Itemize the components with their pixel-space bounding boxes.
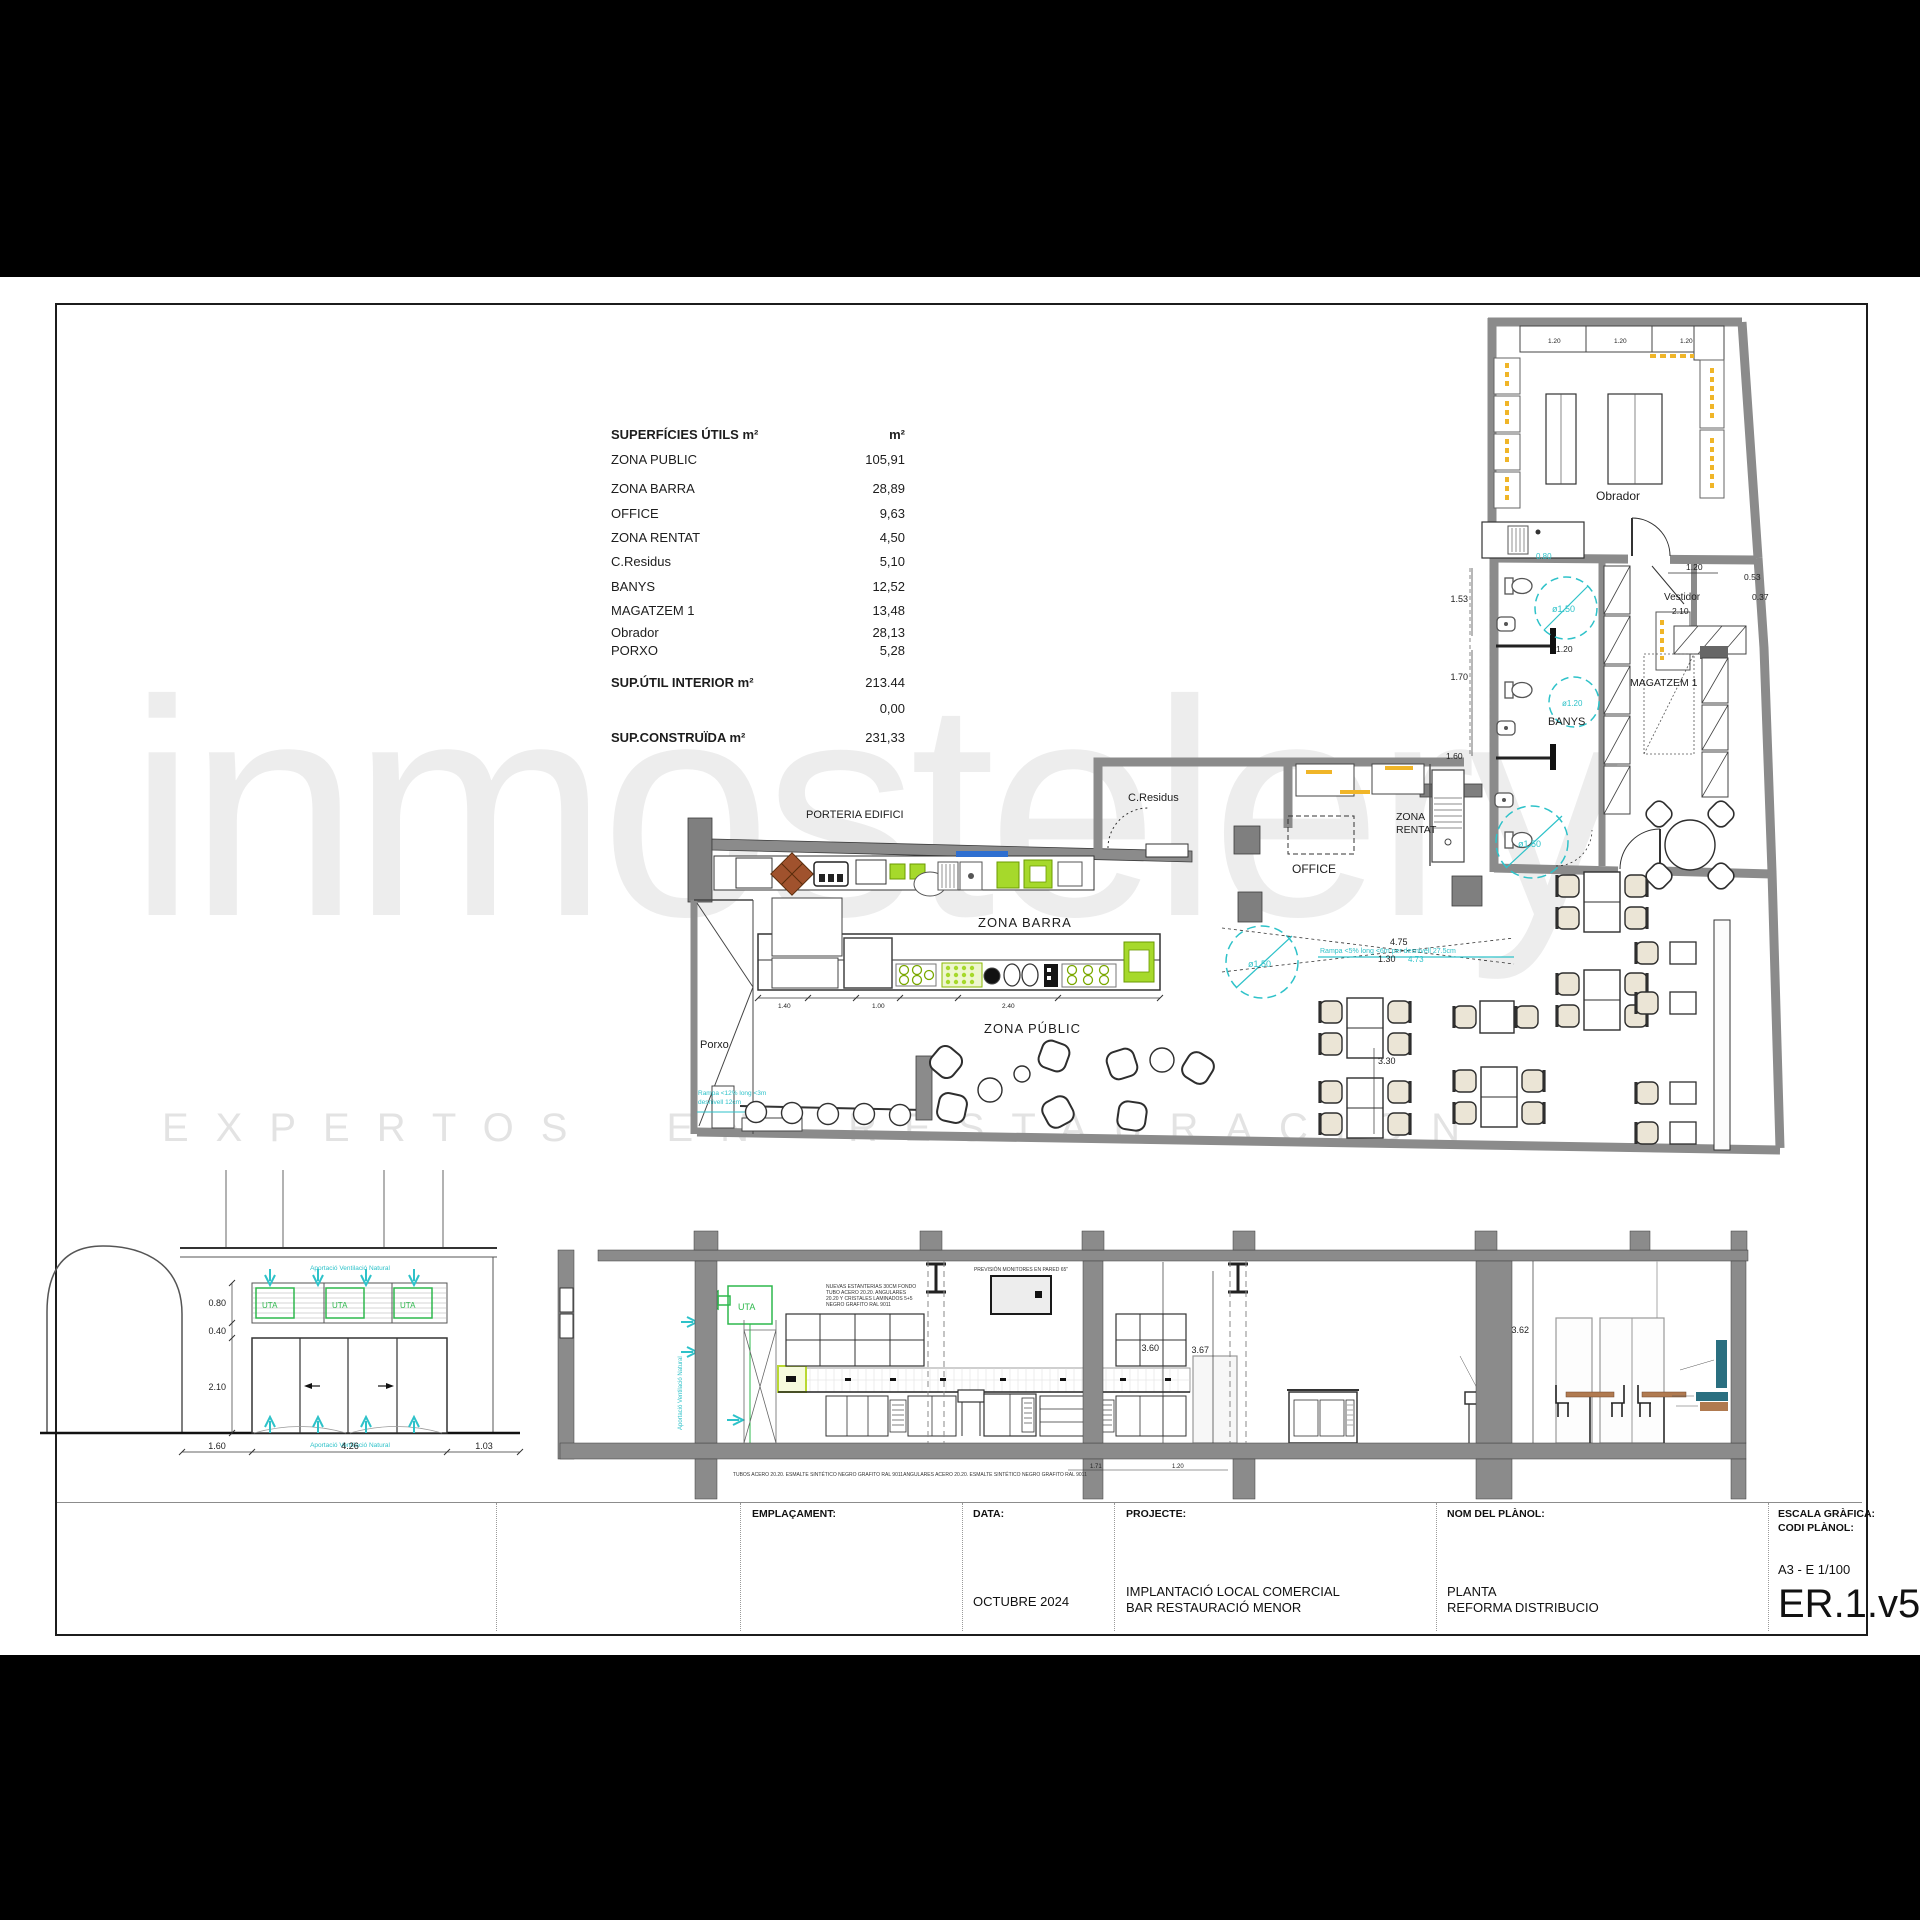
- elev-dim-426: 4.26: [341, 1441, 359, 1451]
- elev-dim-080: 0.80: [208, 1298, 226, 1308]
- ramp-note-porxo-1: Rampa <12% long <3m: [698, 1090, 766, 1097]
- title-block-col-divider: [1436, 1503, 1437, 1631]
- table-row: PORXO5,28: [611, 643, 905, 658]
- dim-bar-3: 2.40: [1002, 1003, 1015, 1010]
- service-rooms: [1288, 764, 1464, 862]
- elev-dim-040: 0.40: [208, 1326, 226, 1336]
- access-circle-2: ø1.50: [1518, 839, 1541, 849]
- dim-160: 1.60: [1446, 751, 1463, 761]
- table-row: BANYS12,52: [611, 579, 905, 594]
- public-zone-furniture: [740, 1038, 1217, 1132]
- elev-dim-210: 2.10: [208, 1382, 226, 1392]
- section-dim-171: 1.71: [1090, 1464, 1102, 1470]
- emplacament-label: EMPLAÇAMENT:: [752, 1508, 836, 1520]
- tv-note: PREVISIÓN MONITORES EN PARED 65": [974, 1266, 1068, 1273]
- dim-bar-2: 1.00: [872, 1003, 885, 1010]
- label-magatzem: MAGATZEM 1: [1630, 677, 1698, 689]
- section-dim-360: 3.60: [1141, 1343, 1159, 1353]
- section-dim-362: 3.62: [1511, 1325, 1529, 1335]
- screenshot-canvas: inmostelery EXPERTOS EN RESTAURACION: [0, 0, 1920, 1920]
- projecte-value: IMPLANTACIÓ LOCAL COMERCIAL BAR RESTAURA…: [1126, 1584, 1340, 1616]
- dim-130: 1.30: [1378, 954, 1396, 964]
- access-circle-3: ø1.50: [1552, 604, 1575, 614]
- title-block-col-divider: [962, 1503, 963, 1631]
- dim-475: 4.75: [1390, 937, 1408, 947]
- bar-back-counter: [714, 851, 1094, 896]
- surface-table-title: SUPERFÍCIES ÚTILS m²: [611, 427, 758, 442]
- data-label: DATA:: [973, 1508, 1004, 1520]
- uta-section: UTA: [738, 1302, 755, 1312]
- surface-table-unit: m²: [889, 427, 905, 442]
- ramp-note-porxo-2: desnivell 12cm: [698, 1099, 741, 1106]
- elev-dim-103: 1.03: [475, 1441, 493, 1451]
- label-porxo: Porxo: [700, 1039, 729, 1051]
- title-block-col-divider: [740, 1503, 741, 1631]
- section-vent-note: Aportació Ventilació Natural: [678, 1356, 684, 1430]
- data-value: OCTUBRE 2024: [973, 1594, 1069, 1610]
- label-cresidus: C.Residus: [1128, 792, 1179, 804]
- table-total-interior: SUP.ÚTIL INTERIOR m²213.44: [611, 675, 905, 690]
- obrador-dim-2: 1.20: [1614, 338, 1627, 345]
- table-row: MAGATZEM 113,48: [611, 603, 905, 618]
- uta-box-2: UTA: [332, 1301, 348, 1310]
- codi-label: CODI PLÀNOL:: [1778, 1522, 1854, 1534]
- dim-120-vestidor: 1.20: [1686, 562, 1703, 572]
- dining-tables: [1320, 798, 1737, 1150]
- elevation-drawing: UTA UTA UTA Aportació Ventilació Natural…: [40, 1170, 523, 1455]
- codi-value: ER.1.v5: [1778, 1584, 1920, 1624]
- escala-value: A3 - E 1/100: [1778, 1562, 1850, 1578]
- table-row: OFFICE9,63: [611, 506, 905, 521]
- title-block-divider: [57, 1502, 1862, 1503]
- elev-dim-160: 1.60: [208, 1441, 226, 1451]
- bar-left-cabinets: [772, 898, 892, 988]
- dim-120-banys: 1.20: [1556, 644, 1573, 654]
- dim-170: 1.70: [1450, 672, 1468, 682]
- section-drawing: UTA Aportació Ventilació Natural PREVISI…: [558, 0, 1748, 1499]
- table-total-built: SUP.CONSTRUÏDA m²231,33: [611, 730, 905, 745]
- section-dim-367: 3.67: [1191, 1345, 1209, 1355]
- drawings: 1.20 1.20 1.20 0.80: [0, 0, 1920, 1920]
- dim-037: 0.37: [1752, 592, 1769, 602]
- label-vestidor: Vestidor: [1664, 592, 1701, 603]
- access-circle-1: ø1.50: [1248, 959, 1271, 969]
- nom-planol-value: PLANTA REFORMA DISTRIBUCIO: [1447, 1584, 1599, 1616]
- obrador-dim-1: 1.20: [1548, 338, 1561, 345]
- label-porteria: PORTERIA EDIFICI: [806, 809, 904, 821]
- title-block-col-divider: [496, 1503, 497, 1631]
- dim-210-vestidor: 2.10: [1672, 606, 1689, 616]
- projecte-label: PROJECTE:: [1126, 1508, 1186, 1520]
- dim-473: 4.73: [1408, 955, 1424, 964]
- table-row: ZONA PUBLIC105,91: [611, 452, 905, 467]
- nom-planol-label: NOM DEL PLÀNOL:: [1447, 1508, 1545, 1520]
- title-block-col-divider: [1114, 1503, 1115, 1631]
- dim-330: 3.30: [1378, 1056, 1396, 1066]
- table-row: ZONA RENTAT4,50: [611, 530, 905, 545]
- obrador-dim-cyan: 0.80: [1536, 552, 1552, 561]
- label-rentat-1: ZONA: [1396, 811, 1425, 823]
- section-bottom-note-1: TUBOS ACERO 20.20. ESMALTE SINTÉTICO NEG…: [733, 1471, 903, 1478]
- dim-bar-1: 1.40: [778, 1003, 791, 1010]
- svg-text:NEGRO GRAFITO RAL 9011: NEGRO GRAFITO RAL 9011: [826, 1302, 891, 1308]
- access-circle-4: ø1.20: [1562, 699, 1583, 708]
- obrador-dim-3: 1.20: [1680, 338, 1693, 345]
- table-row: Obrador28,13: [611, 625, 905, 640]
- table-row: C.Residus5,10: [611, 554, 905, 569]
- label-zona-barra: ZONA BARRA: [978, 915, 1072, 930]
- label-rentat-2: RENTAT: [1396, 824, 1437, 836]
- shelf-note: NUEVAS ESTANTERIAS 30CM FONDO TUBO ACERO…: [826, 1284, 916, 1308]
- vent-note-top: Aportació Ventilació Natural: [310, 1265, 390, 1272]
- dim-053: 0.53: [1744, 572, 1761, 582]
- label-office: OFFICE: [1292, 862, 1336, 876]
- dim-153: 1.53: [1450, 594, 1468, 604]
- label-obrador: Obrador: [1596, 489, 1640, 503]
- table-total-blank: 0,00: [611, 701, 905, 716]
- section-bottom-note-2: ANGULARES ACERO 20.20. ESMALTE SINTÉTICO…: [903, 1471, 1087, 1478]
- section-dim-120: 1.20: [1172, 1464, 1184, 1470]
- escala-label: ESCALA GRÀFICA:: [1778, 1508, 1875, 1520]
- table-row: ZONA BARRA28,89: [611, 481, 905, 496]
- uta-box-3: UTA: [400, 1301, 416, 1310]
- title-block-col-divider: [1768, 1503, 1769, 1631]
- label-banys: BANYS: [1548, 716, 1585, 728]
- label-zona-public: ZONA PÚBLIC: [984, 1021, 1081, 1036]
- uta-box-1: UTA: [262, 1301, 278, 1310]
